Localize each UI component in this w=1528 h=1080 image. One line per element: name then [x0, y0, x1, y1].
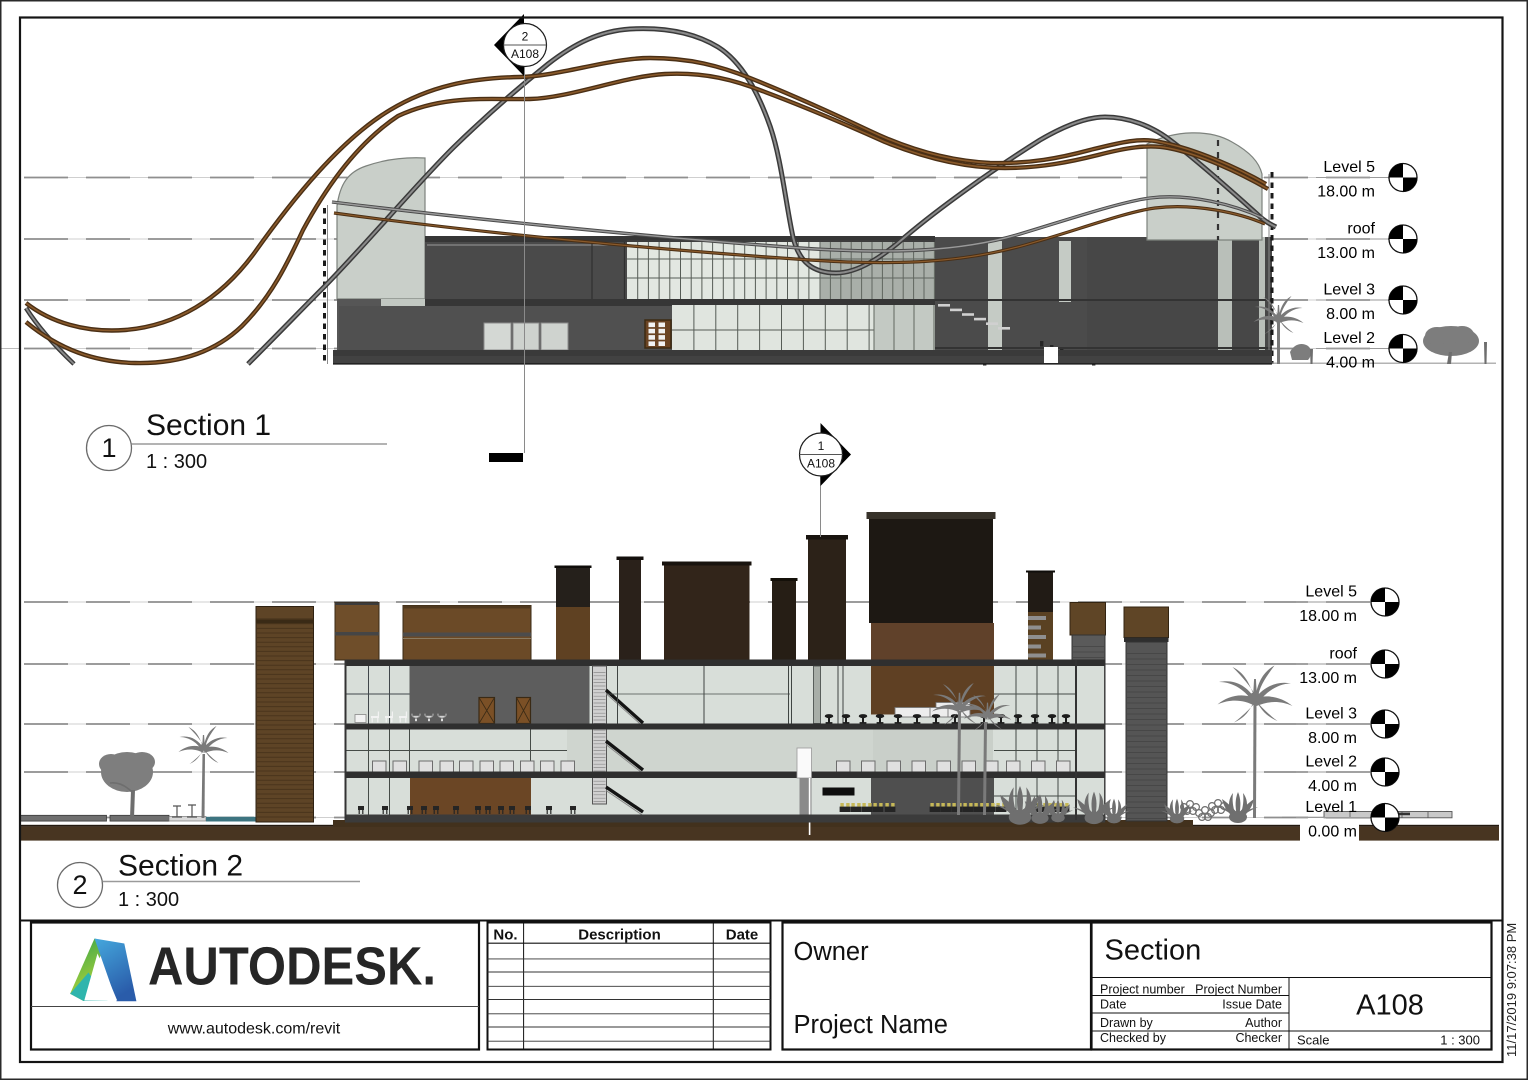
svg-text:18.00 m: 18.00 m — [1317, 184, 1375, 201]
svg-text:Date: Date — [1100, 998, 1126, 1012]
svg-text:13.00 m: 13.00 m — [1299, 670, 1357, 687]
svg-text:4.00 m: 4.00 m — [1308, 778, 1357, 795]
svg-text:roof: roof — [1329, 646, 1357, 663]
svg-text:A108: A108 — [1356, 990, 1424, 1022]
svg-text:www.autodesk.com/revit: www.autodesk.com/revit — [167, 1021, 341, 1038]
svg-text:Level 3: Level 3 — [1305, 706, 1357, 723]
svg-text:1 : 300: 1 : 300 — [1440, 1033, 1480, 1048]
svg-text:A108: A108 — [807, 457, 835, 471]
svg-text:No.: No. — [493, 927, 517, 944]
svg-text:Section: Section — [1105, 935, 1202, 967]
svg-text:Description: Description — [578, 927, 661, 944]
svg-text:Project Number: Project Number — [1195, 983, 1282, 997]
svg-text:Level 5: Level 5 — [1305, 584, 1357, 601]
svg-text:1: 1 — [818, 439, 825, 453]
svg-text:8.00 m: 8.00 m — [1308, 730, 1357, 747]
svg-text:Checked by: Checked by — [1100, 1031, 1167, 1045]
svg-text:13.00 m: 13.00 m — [1317, 245, 1375, 262]
svg-text:2: 2 — [522, 30, 529, 44]
svg-text:Date: Date — [726, 927, 759, 944]
svg-text:Project number: Project number — [1100, 983, 1185, 997]
svg-text:8.00 m: 8.00 m — [1326, 306, 1375, 323]
svg-text:18.00 m: 18.00 m — [1299, 608, 1357, 625]
svg-text:1: 1 — [101, 433, 116, 463]
svg-text:11/17/2019 9:07:38 PM: 11/17/2019 9:07:38 PM — [1504, 923, 1519, 1057]
svg-text:Level 3: Level 3 — [1323, 282, 1375, 299]
svg-text:Section 2: Section 2 — [118, 850, 243, 883]
svg-text:A108: A108 — [511, 47, 539, 61]
svg-text:AUTODESK.: AUTODESK. — [148, 938, 436, 997]
svg-text:Level 1: Level 1 — [1305, 799, 1357, 816]
svg-text:0.00 m: 0.00 m — [1308, 824, 1357, 841]
svg-text:Level 2: Level 2 — [1305, 754, 1357, 771]
svg-text:Author: Author — [1245, 1016, 1282, 1030]
svg-text:4.00 m: 4.00 m — [1326, 355, 1375, 372]
svg-text:Owner: Owner — [794, 938, 870, 966]
svg-text:Level 5: Level 5 — [1323, 159, 1375, 176]
svg-text:roof: roof — [1347, 221, 1375, 238]
svg-text:Checker: Checker — [1235, 1031, 1282, 1045]
svg-text:Level 2: Level 2 — [1323, 330, 1375, 347]
svg-text:1 : 300: 1 : 300 — [146, 451, 207, 473]
svg-text:Section 1: Section 1 — [146, 409, 271, 442]
svg-text:Issue Date: Issue Date — [1222, 998, 1282, 1012]
svg-text:Project Name: Project Name — [794, 1011, 948, 1039]
svg-text:Drawn by: Drawn by — [1100, 1016, 1154, 1030]
svg-text:Scale: Scale — [1297, 1033, 1330, 1048]
svg-text:2: 2 — [72, 870, 87, 900]
svg-text:1 : 300: 1 : 300 — [118, 889, 179, 911]
